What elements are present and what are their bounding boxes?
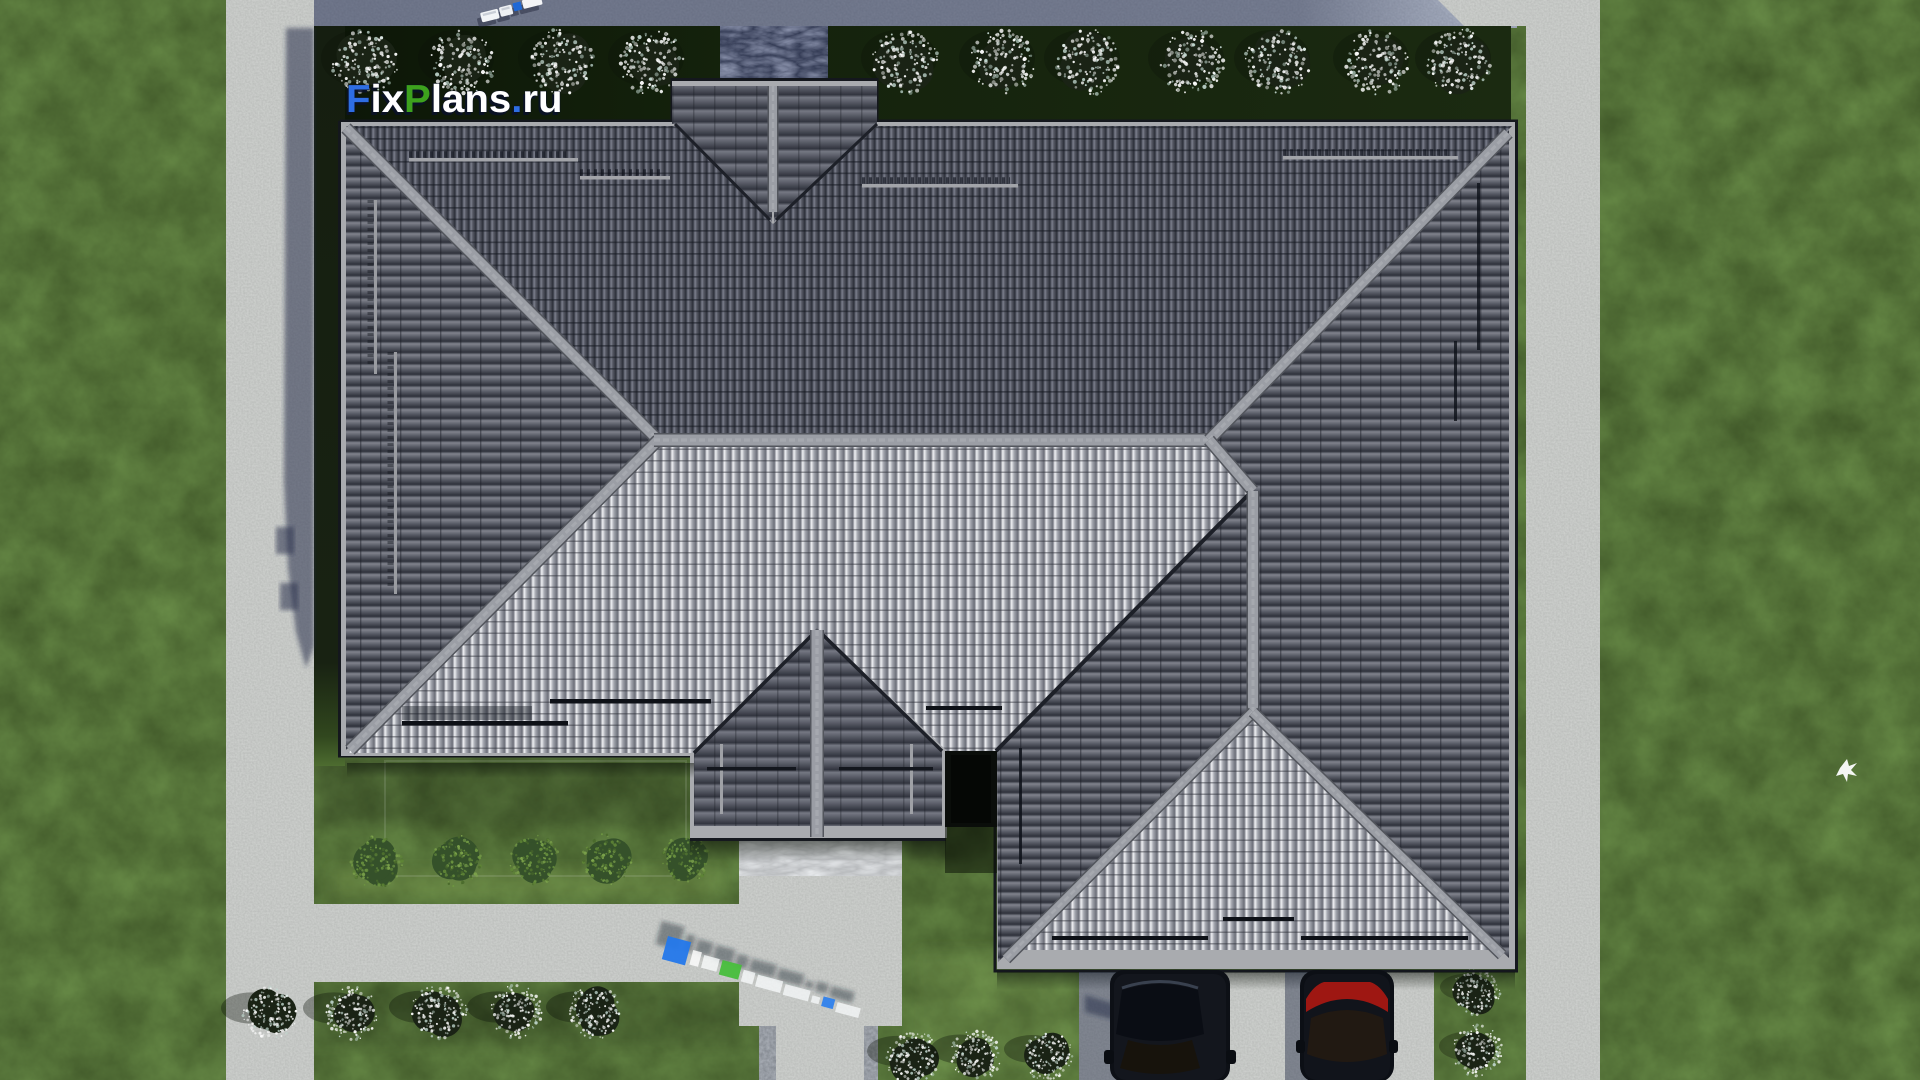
svg-text:FixPlans.ru: FixPlans.ru [346, 78, 563, 121]
